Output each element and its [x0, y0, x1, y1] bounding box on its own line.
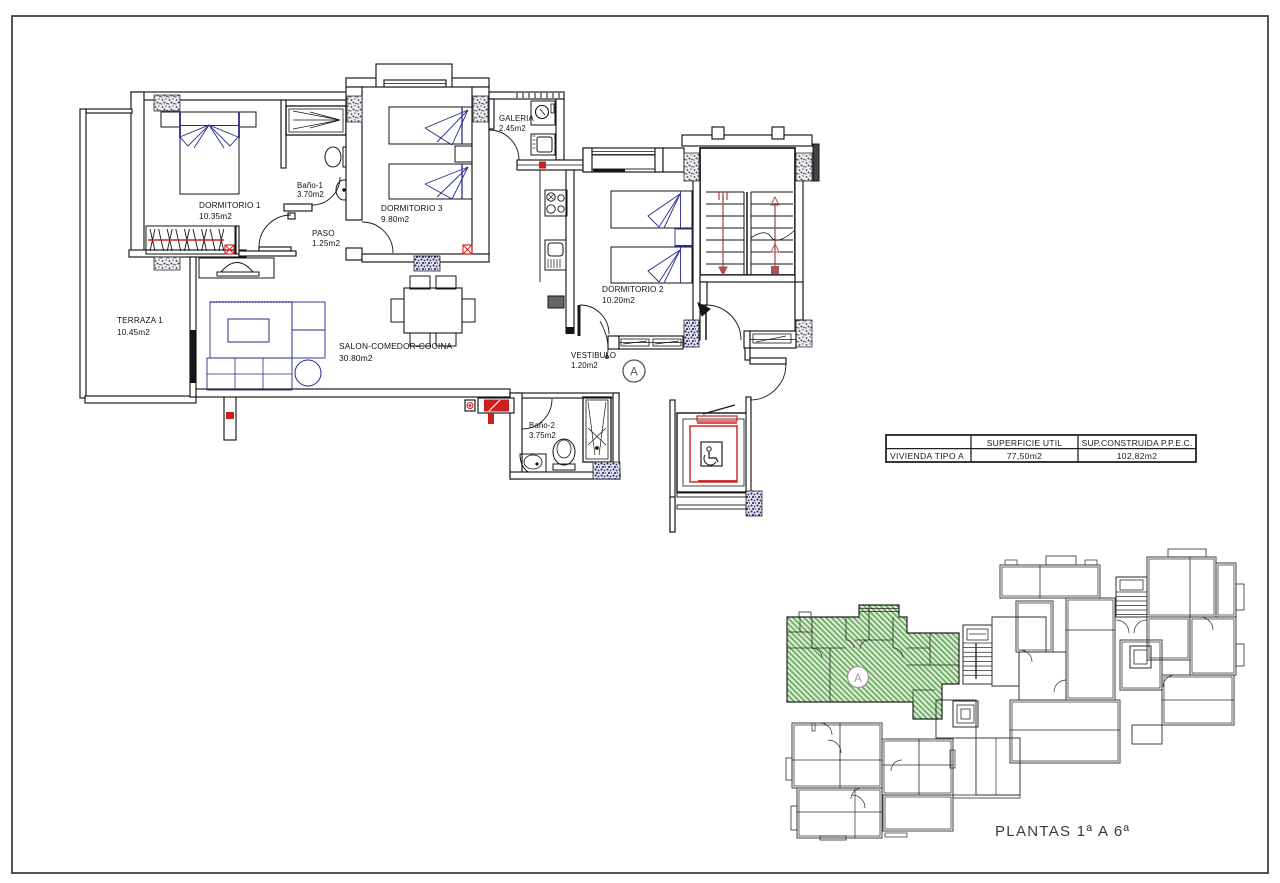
svg-text:10.35m2: 10.35m2 [199, 212, 232, 221]
svg-text:77,50m2: 77,50m2 [1007, 451, 1043, 461]
svg-text:VIVIENDA TIPO A: VIVIENDA TIPO A [890, 451, 964, 461]
svg-text:1.25m2: 1.25m2 [312, 239, 341, 248]
svg-text:PASO: PASO [312, 229, 335, 238]
svg-text:SUP.CONSTRUIDA P.P.E.C.: SUP.CONSTRUIDA P.P.E.C. [1082, 438, 1193, 448]
svg-text:30.80m2: 30.80m2 [339, 353, 373, 363]
svg-text:2.45m2: 2.45m2 [499, 124, 526, 133]
svg-text:SUPERFICIE UTIL: SUPERFICIE UTIL [987, 438, 1063, 448]
svg-text:DORMITORIO 1: DORMITORIO 1 [199, 201, 261, 210]
svg-text:GALERIA: GALERIA [499, 114, 534, 123]
svg-text:Baño-2: Baño-2 [529, 421, 555, 430]
svg-text:A: A [854, 673, 862, 685]
svg-text:DORMITORIO 2: DORMITORIO 2 [602, 285, 664, 294]
svg-text:3.75m2: 3.75m2 [529, 431, 556, 440]
svg-text:VESTIBULO: VESTIBULO [571, 351, 616, 360]
svg-text:TERRAZA 1: TERRAZA 1 [117, 316, 163, 325]
svg-text:3.70m2: 3.70m2 [297, 190, 324, 199]
svg-text:PLANTAS 1ª A 6ª: PLANTAS 1ª A 6ª [995, 823, 1130, 840]
svg-text:10.20m2: 10.20m2 [602, 296, 635, 305]
svg-text:102,82m2: 102,82m2 [1117, 451, 1158, 461]
svg-text:DORMITORIO 3: DORMITORIO 3 [381, 204, 443, 213]
svg-text:9.80m2: 9.80m2 [381, 215, 410, 224]
svg-text:A: A [630, 367, 638, 379]
svg-text:10.45m2: 10.45m2 [117, 328, 150, 337]
svg-text:1.20m2: 1.20m2 [571, 361, 598, 370]
svg-text:Baño-1: Baño-1 [297, 181, 323, 190]
